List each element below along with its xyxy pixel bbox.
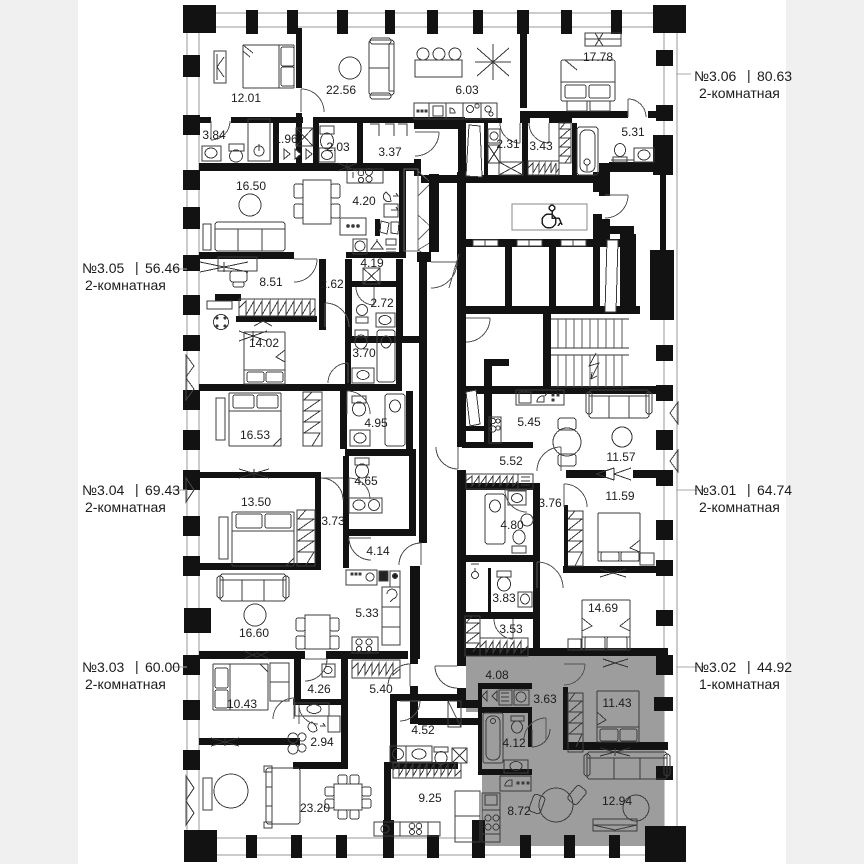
svg-text:9.25: 9.25 xyxy=(418,791,442,805)
svg-text:4.52: 4.52 xyxy=(411,723,435,737)
svg-text:|: | xyxy=(135,481,139,497)
svg-text:16.60: 16.60 xyxy=(239,626,269,640)
svg-text:6.03: 6.03 xyxy=(455,83,479,97)
svg-text:4.14: 4.14 xyxy=(366,544,390,558)
svg-text:80.63: 80.63 xyxy=(757,68,792,84)
svg-text:69.43: 69.43 xyxy=(145,482,180,498)
svg-text:8.51: 8.51 xyxy=(259,275,283,289)
svg-text:5.31: 5.31 xyxy=(621,125,645,139)
svg-text:|: | xyxy=(747,67,751,83)
svg-text:4.12: 4.12 xyxy=(502,736,526,750)
svg-text:3.37: 3.37 xyxy=(378,145,402,159)
svg-text:|: | xyxy=(135,658,139,674)
svg-text:№3.01: №3.01 xyxy=(694,482,736,498)
svg-text:3.63: 3.63 xyxy=(533,692,557,706)
svg-text:3.53: 3.53 xyxy=(499,622,523,636)
svg-text:3.70: 3.70 xyxy=(352,346,376,360)
svg-text:2-комнатная: 2-комнатная xyxy=(85,277,166,293)
svg-text:11.59: 11.59 xyxy=(605,489,634,503)
svg-text:|: | xyxy=(135,259,139,275)
svg-text:№3.03: №3.03 xyxy=(82,659,124,675)
svg-text:2.72: 2.72 xyxy=(370,296,394,310)
svg-text:2.03: 2.03 xyxy=(326,140,350,154)
svg-text:44.92: 44.92 xyxy=(757,659,792,675)
svg-text:2-комнатная: 2-комнатная xyxy=(85,676,166,692)
svg-text:8.72: 8.72 xyxy=(507,804,531,818)
svg-text:1.96: 1.96 xyxy=(274,132,298,146)
svg-text:2.31: 2.31 xyxy=(496,137,520,151)
svg-text:№3.06: №3.06 xyxy=(694,68,736,84)
svg-text:3.76: 3.76 xyxy=(538,496,562,510)
svg-text:14.69: 14.69 xyxy=(588,601,618,615)
svg-text:3.84: 3.84 xyxy=(202,128,226,142)
svg-text:3.83: 3.83 xyxy=(492,591,516,605)
svg-text:2-комнатная: 2-комнатная xyxy=(699,499,780,515)
svg-text:14.02: 14.02 xyxy=(249,336,279,350)
svg-text:2-комнатная: 2-комнатная xyxy=(85,499,166,515)
svg-text:23.20: 23.20 xyxy=(300,801,330,815)
svg-text:3.43: 3.43 xyxy=(529,139,553,153)
svg-text:|: | xyxy=(747,481,751,497)
svg-text:12.94: 12.94 xyxy=(602,794,632,808)
svg-text:5.45: 5.45 xyxy=(517,415,541,429)
svg-text:4.95: 4.95 xyxy=(364,416,388,430)
svg-text:60.00: 60.00 xyxy=(145,659,180,675)
svg-text:11.43: 11.43 xyxy=(602,696,631,710)
svg-text:4.08: 4.08 xyxy=(485,668,509,682)
svg-text:5.40: 5.40 xyxy=(369,682,393,696)
svg-text:1-комнатная: 1-комнатная xyxy=(699,676,780,692)
svg-text:4.80: 4.80 xyxy=(500,518,524,532)
svg-text:4.26: 4.26 xyxy=(307,682,331,696)
svg-text:16.50: 16.50 xyxy=(236,179,266,193)
svg-text:13.50: 13.50 xyxy=(241,495,271,509)
svg-text:22.56: 22.56 xyxy=(326,83,356,97)
svg-text:4.65: 4.65 xyxy=(354,474,378,488)
svg-text:2.94: 2.94 xyxy=(310,735,334,749)
svg-text:№3.02: №3.02 xyxy=(694,659,736,675)
svg-text:4.20: 4.20 xyxy=(352,194,376,208)
svg-text:|: | xyxy=(747,658,751,674)
svg-text:11.57: 11.57 xyxy=(606,450,635,464)
svg-text:64.74: 64.74 xyxy=(757,482,792,498)
svg-text:2.62: 2.62 xyxy=(320,277,344,291)
svg-text:№3.04: №3.04 xyxy=(82,482,124,498)
svg-text:№3.05: №3.05 xyxy=(82,260,124,276)
svg-text:5.52: 5.52 xyxy=(499,454,523,468)
svg-text:3.73: 3.73 xyxy=(321,514,345,528)
svg-text:10.43: 10.43 xyxy=(227,697,257,711)
svg-text:12.01: 12.01 xyxy=(231,91,261,105)
svg-text:56.46: 56.46 xyxy=(145,260,180,276)
svg-text:16.53: 16.53 xyxy=(240,428,270,442)
svg-text:17.78: 17.78 xyxy=(583,50,613,64)
svg-text:2-комнатная: 2-комнатная xyxy=(699,85,780,101)
svg-text:4.19: 4.19 xyxy=(360,256,384,270)
svg-text:5.33: 5.33 xyxy=(355,606,379,620)
